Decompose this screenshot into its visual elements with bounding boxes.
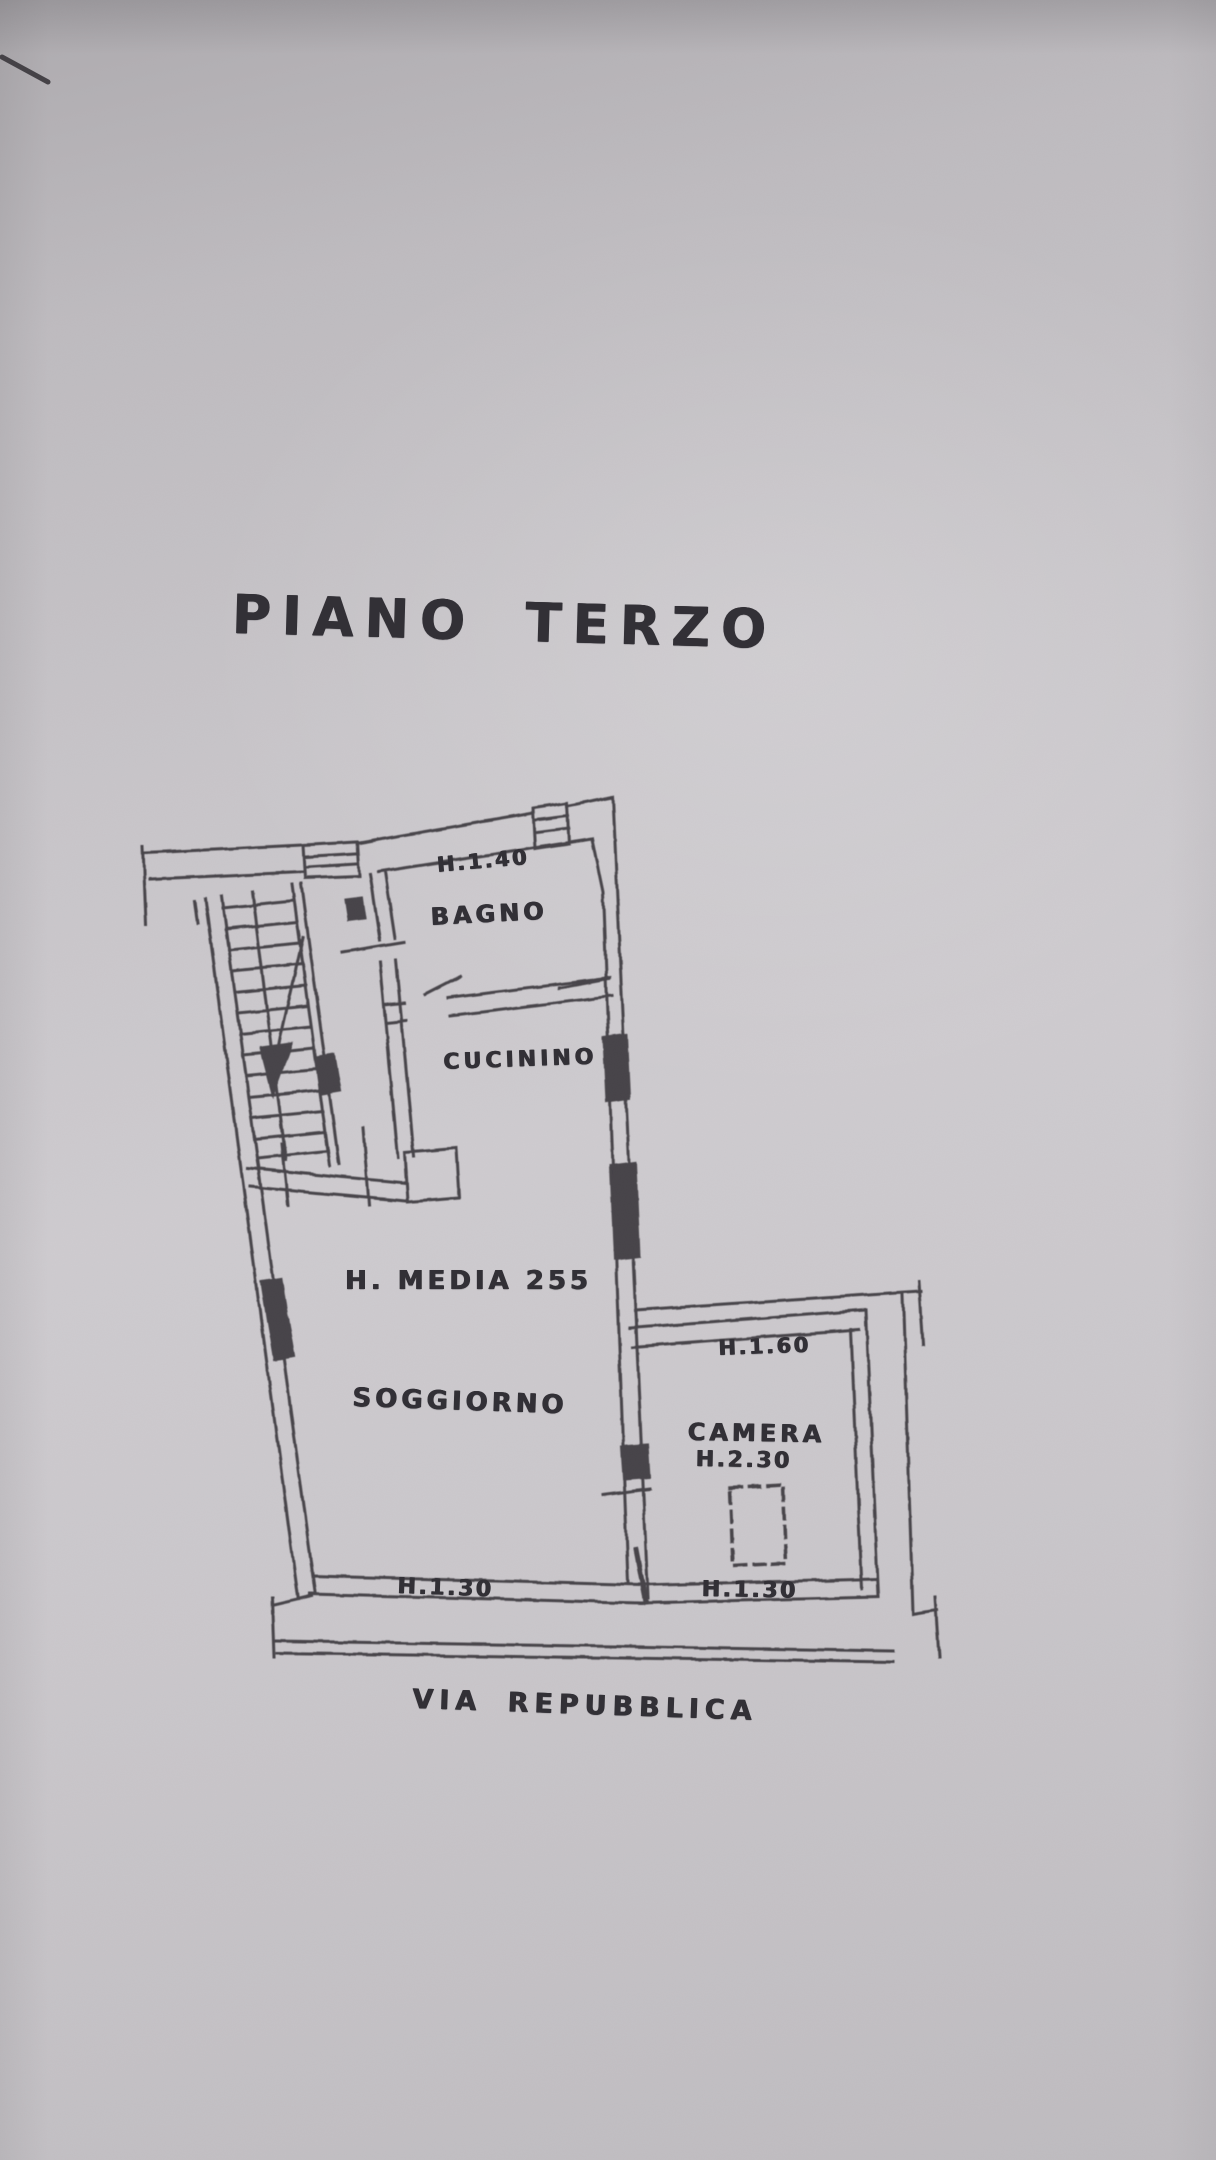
room-label-camera: CAMERA [688, 1418, 826, 1448]
floor-plan-drawing [0, 0, 1216, 2160]
photographed-floor-plan-sheet: { "plan": { "title": "PIANO TERZO", "str… [0, 0, 1216, 2160]
height-label-camera: H.2.30 [696, 1447, 792, 1474]
height-label-parapet-left: H.1.30 [397, 1574, 494, 1602]
height-label-soggiorno: H. MEDIA 255 [345, 1266, 592, 1296]
height-label-parapet-right: H.1.30 [702, 1577, 798, 1604]
paper-grain-texture [0, 0, 1216, 2160]
height-label-terrace: H.1.60 [718, 1333, 811, 1360]
